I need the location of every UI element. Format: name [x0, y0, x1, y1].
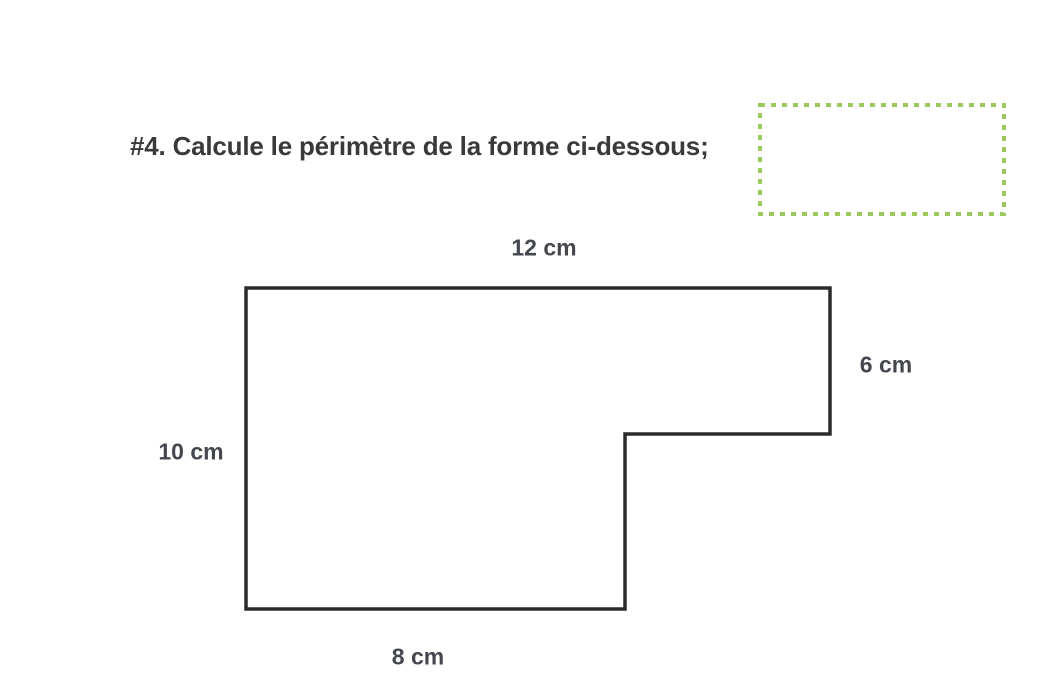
answer-box-border: [758, 103, 1006, 216]
problem-title: #4. Calcule le périmètre de la forme ci-…: [130, 131, 709, 162]
dimension-label-left: 10 cm: [158, 439, 223, 466]
dimension-label-top: 12 cm: [511, 235, 576, 262]
dimension-label-right: 6 cm: [860, 352, 912, 379]
worksheet-page: #4. Calcule le périmètre de la forme ci-…: [0, 0, 1046, 696]
answer-box[interactable]: [758, 103, 1006, 216]
dimension-label-bottom: 8 cm: [392, 644, 444, 671]
l-shape-outline: [246, 288, 830, 609]
